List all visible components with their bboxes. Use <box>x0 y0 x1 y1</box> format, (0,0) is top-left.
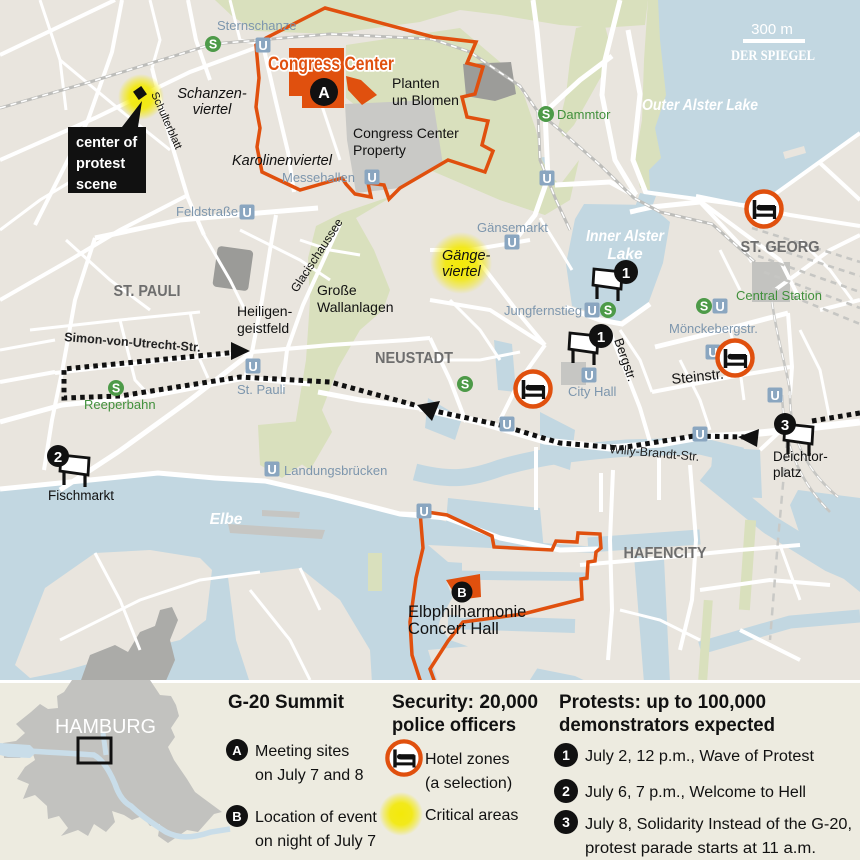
svg-text:scene: scene <box>76 177 117 193</box>
svg-text:3: 3 <box>781 417 789 434</box>
svg-text:2: 2 <box>562 783 570 799</box>
svg-text:protest parade starts at 11 a.: protest parade starts at 11 a.m. <box>585 840 816 857</box>
svg-text:Karolinenviertel: Karolinenviertel <box>232 153 333 169</box>
svg-text:2: 2 <box>54 449 62 466</box>
svg-text:demonstrators expected: demonstrators expected <box>559 715 775 736</box>
svg-text:geistfeld: geistfeld <box>237 320 289 336</box>
svg-text:Property: Property <box>353 142 406 158</box>
svg-text:center of: center of <box>76 135 137 151</box>
svg-text:July 6, 7 p.m., Welcome to Hel: July 6, 7 p.m., Welcome to Hell <box>585 784 806 801</box>
svg-text:Inner Alster: Inner Alster <box>586 228 665 245</box>
svg-text:1: 1 <box>562 747 570 763</box>
svg-text:Gänsemarkt: Gänsemarkt <box>477 220 548 235</box>
svg-text:Elbphilharmonie: Elbphilharmonie <box>408 603 526 621</box>
svg-text:Große: Große <box>317 282 357 298</box>
svg-text:Messehallen: Messehallen <box>282 170 355 185</box>
svg-text:Dammtor: Dammtor <box>557 107 611 122</box>
svg-text:Security: 20,000: Security: 20,000 <box>392 692 538 713</box>
svg-text:Feldstraße: Feldstraße <box>176 204 238 219</box>
svg-text:Protests: up to 100,000: Protests: up to 100,000 <box>559 692 766 713</box>
svg-text:3: 3 <box>562 814 570 830</box>
svg-text:1: 1 <box>622 265 630 282</box>
svg-text:G-20 Summit: G-20 Summit <box>228 692 345 713</box>
svg-text:DER SPIEGEL: DER SPIEGEL <box>731 48 815 64</box>
svg-text:Elbe: Elbe <box>210 511 243 528</box>
svg-text:HAMBURG: HAMBURG <box>55 716 156 738</box>
svg-text:Gänge-: Gänge- <box>442 248 491 264</box>
svg-text:Deichtor-: Deichtor- <box>773 449 828 464</box>
svg-text:Wallanlagen: Wallanlagen <box>317 299 394 315</box>
svg-text:viertel: viertel <box>193 102 232 118</box>
svg-text:Heiligen-: Heiligen- <box>237 303 293 319</box>
svg-text:Jungfernstieg: Jungfernstieg <box>504 303 582 318</box>
svg-text:B: B <box>457 585 466 600</box>
svg-text:City Hall: City Hall <box>568 384 617 399</box>
svg-text:protest: protest <box>76 156 125 172</box>
svg-text:Location of event: Location of event <box>255 809 377 826</box>
svg-text:Mönckebergstr.: Mönckebergstr. <box>669 321 758 336</box>
svg-text:Planten: Planten <box>392 75 439 91</box>
svg-text:Landungsbrücken: Landungsbrücken <box>284 463 387 478</box>
svg-text:ST. PAULI: ST. PAULI <box>114 283 181 300</box>
svg-text:Congress Center: Congress Center <box>268 54 394 75</box>
svg-text:Outer Alster Lake: Outer Alster Lake <box>642 97 758 114</box>
svg-text:Sternschanze: Sternschanze <box>217 18 297 33</box>
svg-text:300 m: 300 m <box>751 21 793 38</box>
svg-text:B: B <box>232 809 241 824</box>
svg-text:un Blomen: un Blomen <box>392 92 459 108</box>
svg-text:July 8, Solidarity Instead of: July 8, Solidarity Instead of the G-20, <box>585 816 852 833</box>
svg-text:ST. GEORG: ST. GEORG <box>741 239 820 256</box>
svg-text:on night of July 7: on night of July 7 <box>255 833 376 850</box>
svg-text:A: A <box>318 85 330 102</box>
svg-text:HAFENCITY: HAFENCITY <box>624 545 707 562</box>
svg-text:Critical areas: Critical areas <box>425 807 518 824</box>
svg-text:platz: platz <box>773 465 802 480</box>
svg-text:NEUSTADT: NEUSTADT <box>375 350 453 367</box>
svg-text:on July 7 and 8: on July 7 and 8 <box>255 767 364 784</box>
svg-text:(a selection): (a selection) <box>425 775 512 792</box>
svg-text:A: A <box>232 743 242 758</box>
svg-text:Hotel zones: Hotel zones <box>425 751 510 768</box>
svg-text:Reeperbahn: Reeperbahn <box>84 397 156 412</box>
svg-text:viertel: viertel <box>442 264 481 280</box>
svg-text:Concert Hall: Concert Hall <box>408 620 499 638</box>
svg-text:St. Pauli: St. Pauli <box>237 382 286 397</box>
svg-text:July 2, 12 p.m., Wave of Prote: July 2, 12 p.m., Wave of Protest <box>585 748 815 765</box>
svg-text:1: 1 <box>597 329 605 346</box>
svg-text:police officers: police officers <box>392 715 516 736</box>
svg-text:Meeting sites: Meeting sites <box>255 743 349 760</box>
svg-text:Congress Center: Congress Center <box>353 125 459 141</box>
svg-text:Central Station: Central Station <box>736 288 822 303</box>
svg-text:Fischmarkt: Fischmarkt <box>48 488 114 503</box>
svg-text:Schanzen-: Schanzen- <box>177 86 246 102</box>
